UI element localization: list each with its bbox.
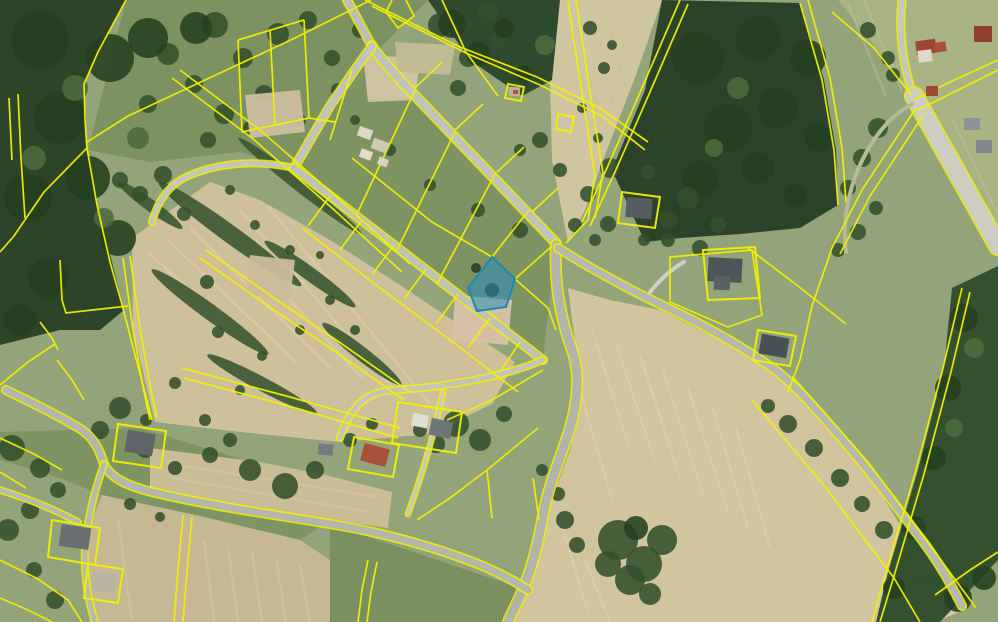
map-canvas[interactable] <box>0 0 998 622</box>
cadastral-map-view <box>0 0 998 622</box>
